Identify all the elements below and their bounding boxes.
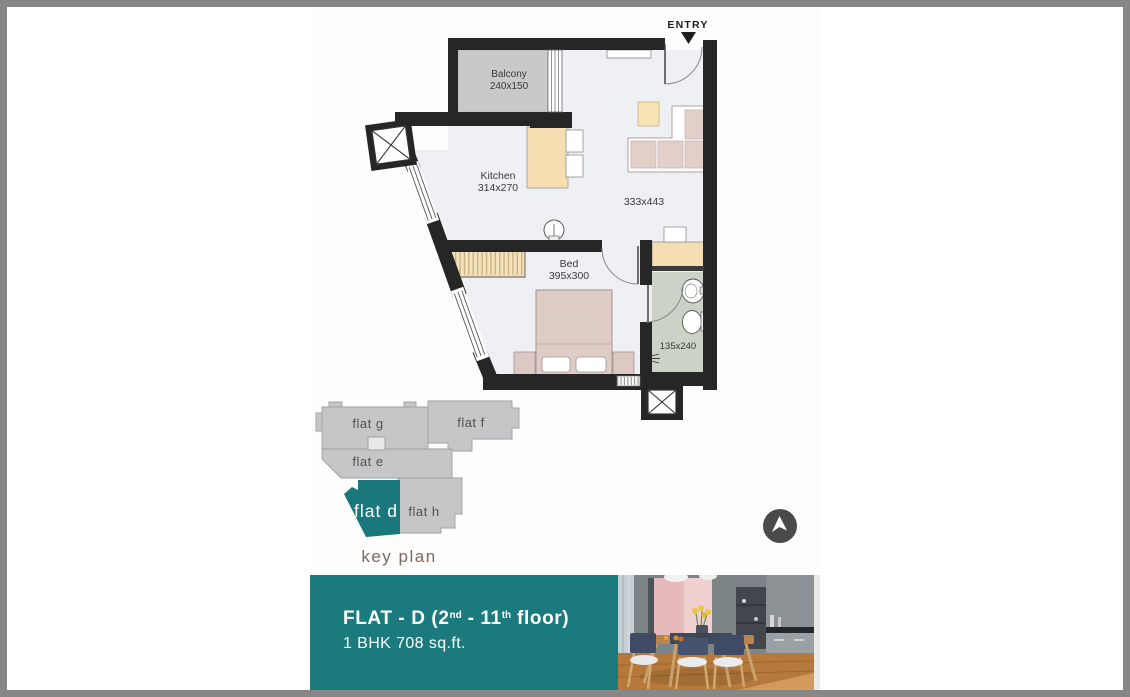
flat-subtitle: 1 BHK 708 sq.ft. [343, 635, 618, 653]
window-bottom [617, 376, 640, 386]
key-plan-flat-e-label: flat e [352, 454, 383, 469]
key-plan-flat-f-label: flat f [457, 415, 485, 430]
key-plan: flat g flat f flat e flat h flat d key p… [316, 401, 519, 566]
bed [536, 290, 612, 377]
shaft-bottom [641, 384, 683, 420]
flat-title-prefix: FLAT - D (2 [343, 608, 450, 629]
living-dims: 333x443 [624, 196, 664, 208]
bathroom-dims: 135x240 [660, 341, 696, 352]
bedside-table-left [514, 352, 535, 377]
key-plan-flat-g-label: flat g [352, 416, 383, 431]
bedside-table-right [613, 352, 634, 377]
entry-arrow-icon [681, 32, 696, 44]
flat-title: FLAT - D (2nd - 11th floor) [343, 605, 618, 630]
balcony-label: Balcony [491, 69, 527, 80]
floor-plan: ENTRY Balcony 240x150 Kitchen 314x270 33… [310, 8, 822, 570]
shaft-left [365, 119, 417, 171]
side-table [638, 102, 659, 126]
kitchen-label: Kitchen [480, 170, 515, 182]
balcony-dims: 240x150 [490, 81, 529, 92]
balcony-door-window [548, 50, 562, 112]
navigation-arrow-icon [763, 509, 797, 543]
key-plan-title: key plan [361, 547, 436, 566]
flat-title-suffix: floor) [511, 608, 569, 629]
key-plan-flat-e-shape [322, 449, 452, 478]
key-plan-lift-core [368, 437, 385, 450]
flat-title-superscript-nd: nd [450, 610, 462, 621]
flat-info-banner: FLAT - D (2nd - 11th floor) 1 BHK 708 sq… [310, 575, 618, 690]
key-plan-flat-d-label: flat d [354, 501, 398, 521]
flat-title-superscript-th: th [502, 610, 511, 621]
kitchen-dims: 314x270 [478, 182, 518, 194]
bed-dims: 395x300 [549, 270, 589, 282]
bed-label: Bed [560, 258, 579, 270]
tv-unit [607, 50, 651, 58]
key-plan-flat-h-label: flat h [408, 504, 439, 519]
navigation-button[interactable] [763, 509, 797, 543]
interior-photo [618, 575, 820, 690]
entry-label: ENTRY [667, 19, 708, 31]
flat-title-mid: - 11 [462, 608, 502, 629]
